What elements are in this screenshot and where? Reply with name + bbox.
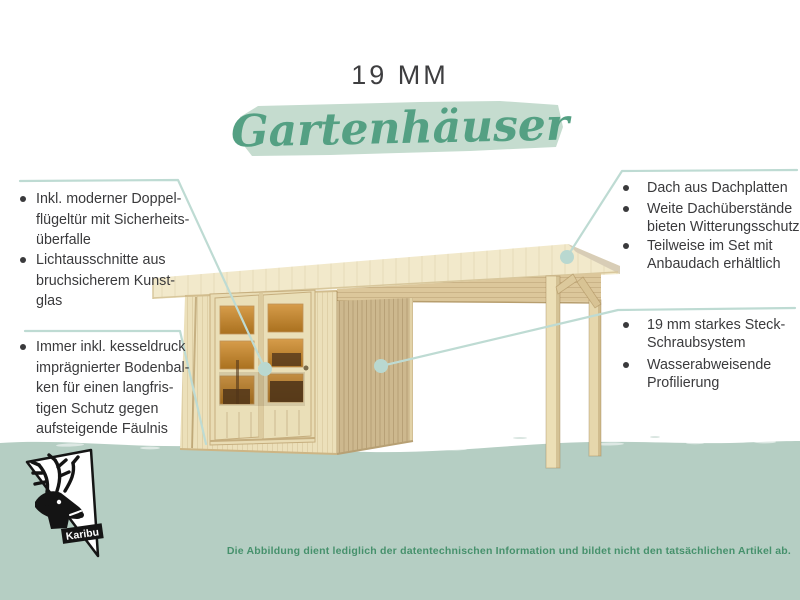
bullet-dot <box>20 344 26 350</box>
feature-line: Anbaudach erhältlich <box>647 255 781 273</box>
feature-line: imprägnierter Bodenbal- <box>36 358 189 379</box>
feature-left-2: Lichtausschnitte aus bruchsicherem Kunst… <box>36 250 175 312</box>
feature-line: Inkl. moderner Doppel- <box>36 189 189 210</box>
bullet-dot <box>623 322 629 328</box>
feature-line: Wasserabweisende <box>647 356 771 374</box>
feature-line: Weite Dachüberstände <box>647 200 800 218</box>
feature-line: aufsteigende Fäulnis <box>36 419 189 440</box>
feature-line: ken für einen langfris- <box>36 378 189 399</box>
feature-line: Immer inkl. kesseldruck <box>36 337 189 358</box>
feature-line: bieten Witterungsschutz <box>647 218 800 236</box>
feature-line: Dach aus Dachplatten <box>647 179 788 197</box>
feature-line: überfalle <box>36 230 189 251</box>
feature-right-2: Weite Dachüberstände bieten Witterungssc… <box>647 200 800 236</box>
feature-right-1: Dach aus Dachplatten <box>647 179 788 197</box>
feature-left-1: Inkl. moderner Doppel- flügeltür mit Sic… <box>36 189 189 251</box>
feature-right-3: Teilweise im Set mit Anbaudach erhältlic… <box>647 237 781 273</box>
feature-line: Teilweise im Set mit <box>647 237 781 255</box>
bullet-dot <box>20 196 26 202</box>
infographic-canvas: 19 MM Gartenhäuser Inkl. moderner Doppel… <box>0 0 800 600</box>
feature-line: 19 mm starkes Steck- <box>647 316 785 334</box>
page-title: 19 MM <box>0 60 800 91</box>
caribou-eye <box>57 500 61 504</box>
bullet-dot <box>623 243 629 249</box>
feature-line: tigen Schutz gegen <box>36 399 189 420</box>
bullet-dot <box>623 362 629 368</box>
bullet-dot <box>623 185 629 191</box>
feature-left-3: Immer inkl. kesseldruck imprägnierter Bo… <box>36 337 189 440</box>
bullet-dot <box>623 206 629 212</box>
feature-line: flügeltür mit Sicherheits- <box>36 210 189 231</box>
bullet-dot <box>20 257 26 263</box>
feature-line: Lichtausschnitte aus <box>36 250 175 271</box>
feature-right-4: 19 mm starkes Steck- Schraubsystem <box>647 316 785 352</box>
karibu-logo: Karibu <box>15 445 110 570</box>
disclaimer-text: Die Abbildung dient lediglich der datent… <box>227 545 791 557</box>
feature-line: glas <box>36 291 175 312</box>
feature-right-5: Wasserabweisende Profilierung <box>647 356 771 392</box>
feature-line: Schraubsystem <box>647 334 785 352</box>
feature-line: bruchsicherem Kunst- <box>36 271 175 292</box>
feature-line: Profilierung <box>647 374 771 392</box>
